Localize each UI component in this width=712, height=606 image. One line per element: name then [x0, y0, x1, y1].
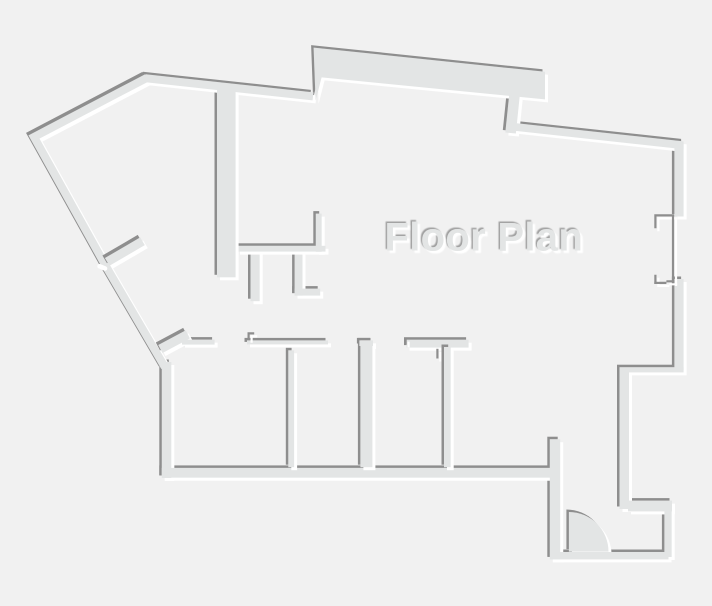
svg-text:Floor Plan: Floor Plan [385, 215, 584, 259]
